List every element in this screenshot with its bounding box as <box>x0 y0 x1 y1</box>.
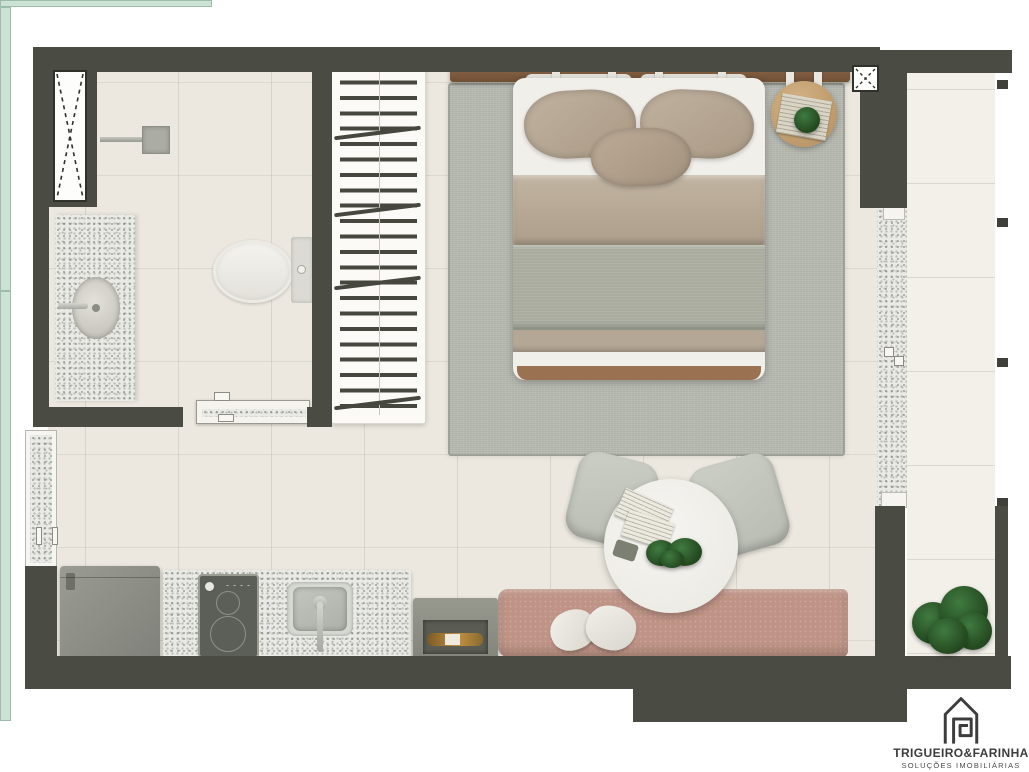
door-handle <box>214 392 230 401</box>
wardrobe-closet <box>332 63 425 423</box>
wall-railing-lower <box>995 506 1008 658</box>
wall-kitchen-left <box>33 407 183 427</box>
bottle-label <box>445 634 460 645</box>
bed-frame-rim <box>517 366 761 380</box>
wall-top <box>35 47 880 72</box>
wall-column-right <box>860 72 907 208</box>
brand-house-icon <box>936 694 986 744</box>
cooktop-burner-small <box>216 591 240 615</box>
two-burner-cooktop <box>198 574 259 658</box>
shower-glass-divider <box>0 0 212 7</box>
vent-shaft-right <box>852 65 879 92</box>
toilet <box>213 240 293 303</box>
bed-center-pillow <box>590 126 692 187</box>
fridge-handle <box>66 573 75 590</box>
window-handle <box>52 527 58 545</box>
bed-duvet-fold <box>513 330 765 352</box>
vent-shaft-left <box>53 70 87 202</box>
balcony-door-handle <box>894 356 904 366</box>
brand-name: TRIGUEIRO&FARINHA <box>893 746 1029 760</box>
service-window <box>25 430 57 568</box>
railing-clip <box>997 80 1008 89</box>
balcony-door-handle <box>884 347 894 357</box>
toilet-flush-button <box>297 265 306 274</box>
balcony-plant <box>910 584 994 656</box>
railing-clip <box>997 218 1008 227</box>
table-centerpiece-plant <box>660 550 684 568</box>
cooktop-knob <box>205 582 214 591</box>
shower-head-plate <box>142 126 170 154</box>
washbasin-drain <box>92 304 100 312</box>
wall-kitchen-right <box>307 407 332 427</box>
window-handle <box>36 527 42 545</box>
closet-rail <box>379 71 380 415</box>
kitchen-faucet-pipe <box>317 602 323 652</box>
plant-foliage <box>928 618 968 654</box>
wall-bath-closet <box>312 47 332 427</box>
bathroom-sliding-door <box>196 400 310 424</box>
balcony-floor <box>907 73 995 657</box>
balcony-sliding-glass-door <box>0 7 11 291</box>
bed-blanket <box>513 245 765 330</box>
fridge-seam <box>60 577 160 578</box>
nightstand-plant <box>794 107 820 133</box>
washbasin-faucet <box>58 303 88 309</box>
shower-arm <box>100 137 144 142</box>
door-handle <box>218 414 234 422</box>
wall-bottom-step <box>633 689 907 722</box>
cooktop-controls <box>224 584 252 587</box>
floor-plan-render: TRIGUEIRO&FARINHA SOLUÇÕES IMOBILIÁRIAS <box>0 0 1029 772</box>
shaft-x-icon <box>55 72 85 200</box>
railing-clip <box>997 358 1008 367</box>
shaft-x-icon <box>854 67 877 90</box>
cooktop-burner-large <box>210 616 246 652</box>
wall-left-mid <box>33 205 49 427</box>
refrigerator <box>60 566 160 660</box>
balcony-glass-railing <box>0 291 11 721</box>
brand-logo: TRIGUEIRO&FARINHA SOLUÇÕES IMOBILIÁRIAS <box>893 694 1029 772</box>
wall-balcony-left-lower <box>875 506 905 660</box>
wine-crate <box>413 598 498 660</box>
wall-bottom <box>30 656 1011 689</box>
brand-tagline: SOLUÇÕES IMOBILIÁRIAS <box>893 761 1029 770</box>
